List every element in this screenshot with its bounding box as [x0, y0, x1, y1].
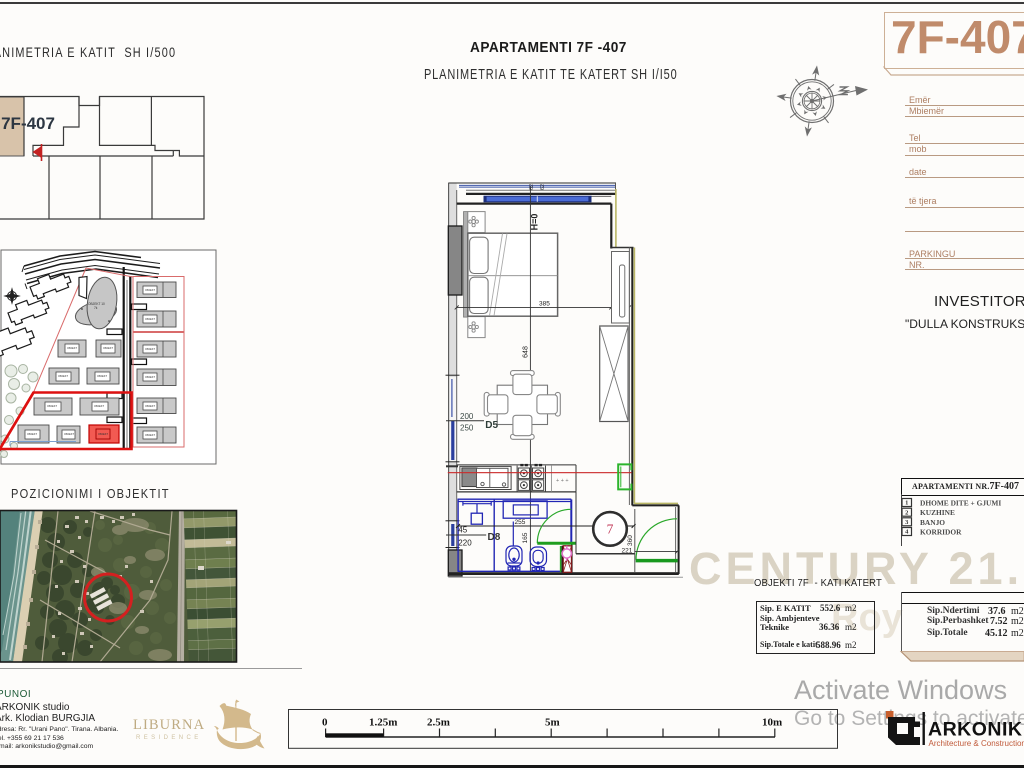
- svg-text:+++: +++: [556, 478, 570, 484]
- svg-text:2.5m: 2.5m: [427, 716, 450, 728]
- svg-text:4: 4: [905, 529, 909, 536]
- svg-text:ARKONIK: ARKONIK: [928, 719, 1023, 741]
- svg-text:7: 7: [607, 522, 614, 537]
- svg-text:OBJEKT: OBJEKT: [103, 346, 114, 350]
- svg-text:3: 3: [905, 519, 909, 526]
- svg-text:2: 2: [905, 509, 908, 516]
- svg-text:385: 385: [539, 300, 550, 307]
- svg-text:OBJEKT: OBJEKT: [145, 288, 156, 292]
- svg-text:62: 62: [540, 184, 546, 190]
- svg-text:D8: D8: [488, 532, 501, 543]
- svg-text:D5: D5: [485, 420, 498, 431]
- svg-text:5m: 5m: [545, 716, 560, 728]
- svg-text:OBJEKT: OBJEKT: [145, 347, 156, 351]
- svg-text:OBJEKT: OBJEKT: [27, 432, 38, 436]
- svg-text:KORRIDOR: KORRIDOR: [920, 528, 962, 537]
- svg-text:1: 1: [905, 500, 908, 507]
- svg-text:7k: 7k: [94, 306, 98, 310]
- svg-text:OBJEKT: OBJEKT: [67, 346, 78, 350]
- svg-text:360: 360: [627, 535, 634, 546]
- svg-text:DHOME DITE + GJUMI: DHOME DITE + GJUMI: [920, 499, 1001, 508]
- svg-text:220: 220: [458, 539, 472, 548]
- svg-text:45: 45: [458, 526, 467, 535]
- svg-text:OBJEKT: OBJEKT: [98, 432, 109, 436]
- svg-text:o.7F-407: o.7F-407: [0, 114, 55, 133]
- svg-text:KUZHINE: KUZHINE: [920, 508, 955, 517]
- svg-text:OBJEKT: OBJEKT: [97, 374, 108, 378]
- svg-text:165: 165: [522, 532, 529, 543]
- svg-text:H=0: H=0: [530, 214, 540, 231]
- svg-text:OBJEKT: OBJEKT: [145, 317, 156, 321]
- svg-text:OBJEKT: OBJEKT: [145, 375, 156, 379]
- svg-text:255: 255: [515, 519, 526, 526]
- svg-text:BANJO: BANJO: [920, 518, 945, 527]
- svg-text:1.25m: 1.25m: [369, 716, 397, 728]
- svg-text:OBJEKT: OBJEKT: [145, 433, 156, 437]
- svg-text:Architecture & Construction: Architecture & Construction: [929, 739, 1024, 748]
- svg-text:62: 62: [529, 184, 535, 190]
- svg-text:0: 0: [322, 716, 328, 728]
- svg-text:200: 200: [460, 412, 474, 421]
- svg-text:648: 648: [523, 346, 530, 358]
- svg-text:OBJEKT: OBJEKT: [47, 404, 58, 408]
- svg-text:10m: 10m: [762, 716, 782, 728]
- svg-text:OBJEKT: OBJEKT: [58, 374, 69, 378]
- svg-text:OBJEKT: OBJEKT: [145, 404, 156, 408]
- svg-text:OBJEKT: OBJEKT: [64, 432, 75, 436]
- svg-text:250: 250: [460, 424, 474, 433]
- svg-text:OBJEKT: OBJEKT: [94, 404, 105, 408]
- svg-text:221: 221: [622, 547, 633, 554]
